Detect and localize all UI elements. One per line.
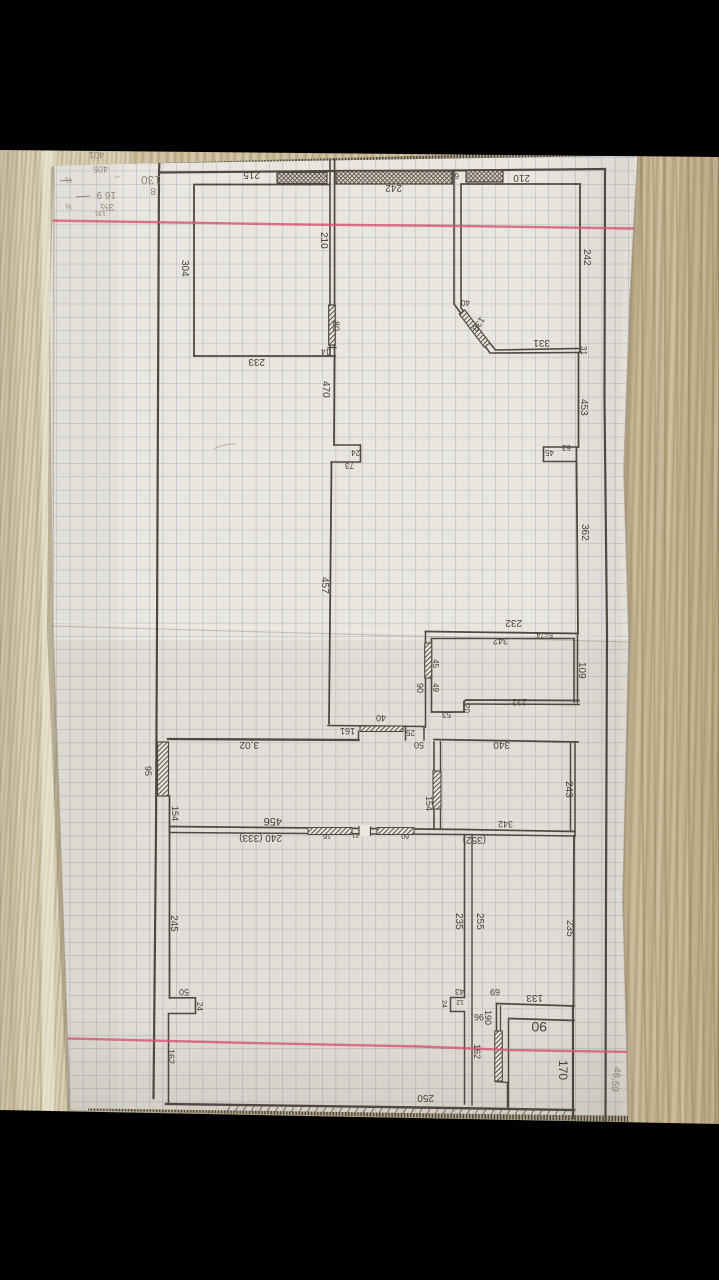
svg-text:40: 40 xyxy=(461,298,470,307)
svg-text:243: 243 xyxy=(563,781,574,798)
svg-text:133: 133 xyxy=(526,992,543,1003)
svg-text:190: 190 xyxy=(483,1010,493,1025)
svg-text:53: 53 xyxy=(442,710,451,719)
svg-text:45: 45 xyxy=(431,659,440,668)
svg-text:154: 154 xyxy=(424,796,434,811)
svg-text:255: 255 xyxy=(474,913,485,930)
svg-text:3,02: 3,02 xyxy=(239,739,259,750)
svg-text:235: 235 xyxy=(564,920,575,937)
svg-text:25: 25 xyxy=(406,728,415,737)
svg-text:60: 60 xyxy=(401,832,409,839)
svg-text:16 9: 16 9 xyxy=(96,189,116,200)
svg-text:342: 342 xyxy=(498,819,513,829)
svg-text:(352): (352) xyxy=(463,834,486,845)
svg-text:161: 161 xyxy=(340,726,355,736)
svg-text:242: 242 xyxy=(385,182,402,193)
svg-text:242: 242 xyxy=(581,249,592,266)
svg-text:240 (333): 240 (333) xyxy=(239,832,282,843)
svg-text:210: 210 xyxy=(513,172,530,183)
svg-text:233: 233 xyxy=(248,356,265,367)
svg-text:24: 24 xyxy=(440,1000,447,1008)
svg-text:50: 50 xyxy=(414,740,424,750)
svg-text:11: 11 xyxy=(352,831,359,838)
svg-text:63: 63 xyxy=(562,443,571,452)
svg-text:457: 457 xyxy=(319,577,330,594)
svg-text:49: 49 xyxy=(431,683,440,692)
svg-text:342: 342 xyxy=(493,636,508,646)
svg-text:⅓: ⅓ xyxy=(65,175,72,184)
svg-text:90: 90 xyxy=(531,1019,547,1035)
svg-text:109: 109 xyxy=(576,662,587,679)
svg-text:½: ½ xyxy=(65,202,72,211)
svg-text:43: 43 xyxy=(455,987,464,996)
svg-text:170: 170 xyxy=(556,1060,570,1080)
svg-text:80: 80 xyxy=(331,321,341,331)
svg-text:453: 453 xyxy=(578,399,589,416)
svg-text:215: 215 xyxy=(243,169,260,180)
svg-text:232: 232 xyxy=(512,697,527,707)
svg-text:95: 95 xyxy=(143,766,153,776)
svg-text:405: 405 xyxy=(93,164,108,174)
svg-text:154: 154 xyxy=(170,806,180,821)
svg-text:304: 304 xyxy=(179,260,190,277)
svg-text:14: 14 xyxy=(321,347,330,356)
svg-text:362: 362 xyxy=(579,524,590,541)
svg-text:130: 130 xyxy=(141,173,161,187)
svg-text:162: 162 xyxy=(472,1044,482,1059)
svg-text:50: 50 xyxy=(179,987,189,997)
svg-text:235: 235 xyxy=(453,913,464,930)
svg-text:96: 96 xyxy=(474,1012,484,1022)
svg-text:73: 73 xyxy=(345,461,354,470)
svg-text:340: 340 xyxy=(493,739,510,750)
svg-text:456: 456 xyxy=(264,815,282,827)
svg-text:31: 31 xyxy=(579,346,588,355)
svg-text:401: 401 xyxy=(89,150,104,160)
svg-text:90: 90 xyxy=(415,683,425,693)
svg-text:69: 69 xyxy=(490,987,500,997)
svg-text:45: 45 xyxy=(545,448,554,457)
svg-text:20: 20 xyxy=(462,704,471,713)
svg-text:232: 232 xyxy=(505,617,522,628)
svg-text:16: 16 xyxy=(323,832,331,839)
svg-text:250: 250 xyxy=(417,1092,434,1103)
svg-text:245: 245 xyxy=(168,915,179,932)
svg-text:8: 8 xyxy=(150,185,156,196)
svg-text:Б=74: Б=74 xyxy=(536,631,553,638)
svg-text:24: 24 xyxy=(351,448,360,457)
svg-text:24: 24 xyxy=(195,1002,204,1011)
svg-text:6: 6 xyxy=(454,171,459,180)
svg-text:162: 162 xyxy=(166,1049,176,1064)
svg-text:210: 210 xyxy=(318,232,329,249)
svg-text:40: 40 xyxy=(376,713,386,723)
svg-text:470: 470 xyxy=(320,381,331,398)
svg-text:131: 131 xyxy=(94,209,106,216)
svg-text:12: 12 xyxy=(456,998,464,1005)
svg-text:331: 331 xyxy=(533,337,550,348)
